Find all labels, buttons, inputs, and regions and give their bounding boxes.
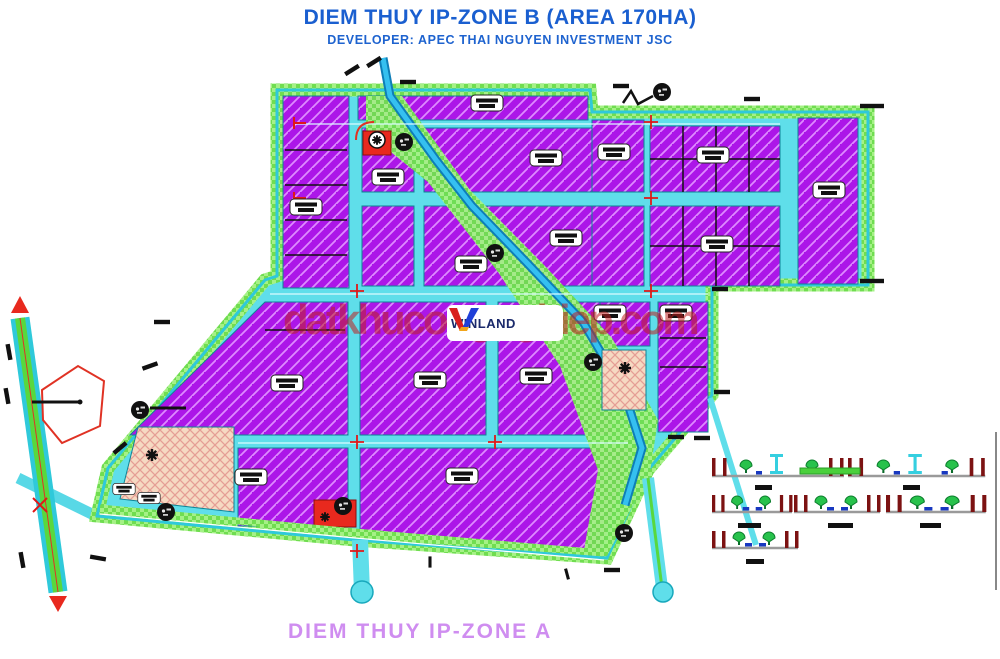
plot-label-chip — [471, 95, 503, 111]
plot — [283, 96, 349, 288]
plot-label-chip — [813, 182, 845, 198]
plot-label-chip — [598, 144, 630, 160]
plot-label-chip — [701, 236, 733, 252]
survey-marker-icon — [486, 244, 504, 262]
plot-label-chip — [271, 375, 303, 391]
plot-special — [120, 427, 234, 512]
flow-arrow-icon — [11, 296, 29, 313]
plot-label-chip — [530, 150, 562, 166]
plot-label-chip — [550, 230, 582, 246]
zone-a-label: DIEM THUY IP-ZONE A — [288, 620, 552, 644]
star-marker-icon — [372, 135, 382, 145]
west-green-road — [3, 296, 106, 612]
plot-label-chip — [138, 492, 160, 503]
survey-marker-icon — [653, 83, 671, 101]
plot-label-chip — [113, 483, 135, 494]
flow-arrow-icon — [49, 596, 67, 612]
plot-label-chip — [290, 199, 322, 215]
plot-special — [602, 350, 646, 410]
plot — [362, 206, 414, 286]
survey-marker-icon — [334, 497, 352, 515]
plot-label-chip — [446, 468, 478, 484]
survey-marker-icon — [131, 401, 149, 419]
plot-label-chip — [414, 372, 446, 388]
plot-label-chip — [697, 147, 729, 163]
brand-logo: WINLAND — [447, 305, 563, 341]
v-logo-icon — [447, 305, 481, 333]
plot — [798, 118, 858, 284]
survey-marker-icon — [157, 503, 175, 521]
survey-marker-icon — [395, 133, 413, 151]
plot-label-chip — [235, 469, 267, 485]
plot-label-chip — [520, 368, 552, 384]
plot-label-chip — [372, 169, 404, 185]
survey-marker-icon — [615, 524, 633, 542]
plot — [592, 206, 644, 286]
survey-marker-icon — [584, 353, 602, 371]
plot-label-chip — [455, 256, 487, 272]
road-cross-sections — [712, 432, 996, 590]
star-marker-icon — [320, 512, 330, 522]
